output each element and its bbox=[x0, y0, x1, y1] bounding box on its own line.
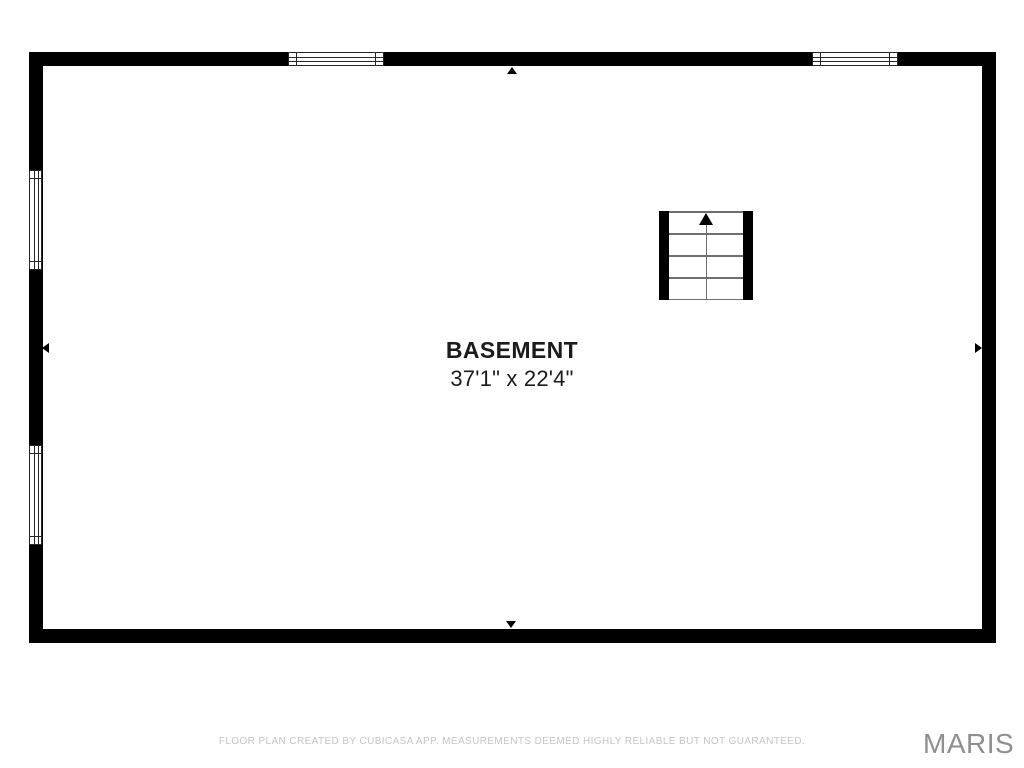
window-pane-line bbox=[38, 171, 39, 269]
window-frame-line bbox=[889, 53, 890, 65]
window-frame-line bbox=[375, 53, 376, 65]
window-icon bbox=[812, 52, 898, 66]
staircase-icon bbox=[659, 211, 753, 300]
window-icon bbox=[29, 445, 42, 545]
floor-plan-canvas: BASEMENT 37'1" x 22'4" FLOOR PLAN CREATE… bbox=[0, 0, 1024, 768]
window-pane-line bbox=[289, 57, 383, 58]
room-dimensions: 37'1" x 22'4" bbox=[0, 365, 1024, 392]
window-frame-line bbox=[30, 453, 41, 454]
window-frame-line bbox=[296, 53, 297, 65]
stairs-direction-line bbox=[706, 224, 708, 300]
window-frame-line bbox=[30, 536, 41, 537]
room-label: BASEMENT 37'1" x 22'4" bbox=[0, 337, 1024, 392]
disclaimer-text: FLOOR PLAN CREATED BY CUBICASA APP. MEAS… bbox=[0, 736, 1024, 747]
window-pane-line bbox=[34, 446, 35, 544]
window-pane-line bbox=[813, 57, 897, 58]
window-pane-line bbox=[289, 61, 383, 62]
window-pane-line bbox=[34, 171, 35, 269]
window-frame-line bbox=[30, 261, 41, 262]
stairs-up-arrow-icon bbox=[699, 213, 713, 225]
stair-stringer bbox=[743, 211, 753, 300]
stair-stringer bbox=[659, 211, 669, 300]
window-icon bbox=[29, 170, 42, 270]
top-wall-tick-arrow-icon bbox=[507, 67, 517, 74]
window-icon bbox=[288, 52, 384, 66]
window-pane-line bbox=[38, 446, 39, 544]
window-pane-line bbox=[813, 61, 897, 62]
window-frame-line bbox=[30, 178, 41, 179]
window-frame-line bbox=[820, 53, 821, 65]
bottom-wall-tick-arrow-icon bbox=[506, 621, 516, 628]
maris-logo: MARIS bbox=[923, 729, 1014, 759]
room-name: BASEMENT bbox=[0, 337, 1024, 364]
